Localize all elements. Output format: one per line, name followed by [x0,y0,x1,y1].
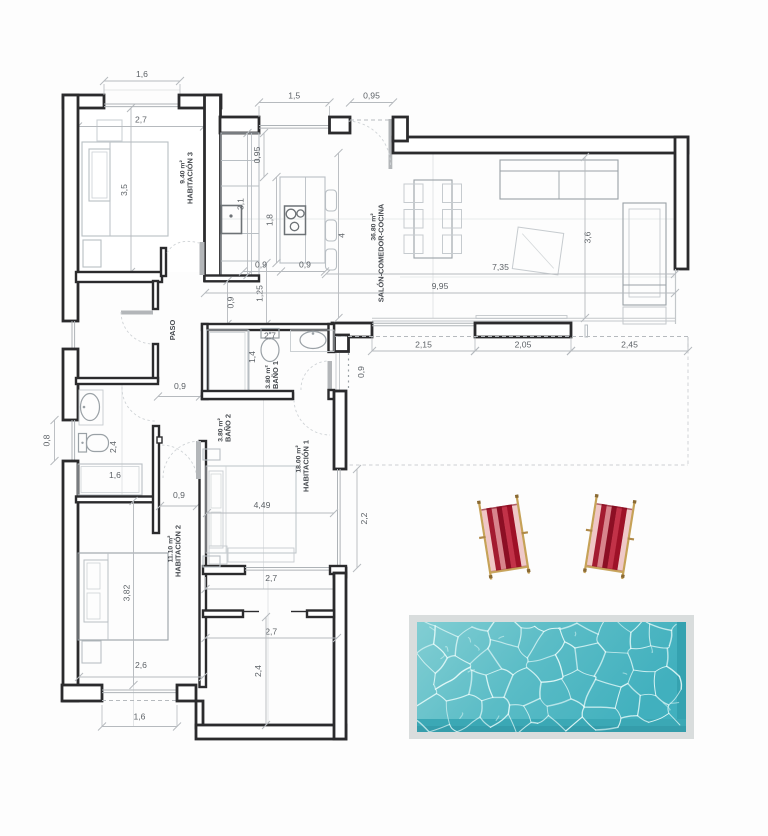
svg-text:2,7: 2,7 [265,573,277,583]
svg-text:0,9: 0,9 [226,296,236,308]
svg-text:0,9: 0,9 [299,260,311,270]
svg-text:0,9: 0,9 [356,366,366,378]
svg-text:1,5: 1,5 [288,91,300,101]
svg-text:2,2: 2,2 [359,512,369,524]
svg-text:2,6: 2,6 [135,660,147,670]
svg-text:2,15: 2,15 [415,340,432,350]
svg-text:3,1: 3,1 [236,198,246,210]
svg-text:3.80 m²: 3.80 m² [218,418,225,442]
svg-text:HABITACIÓN 2: HABITACIÓN 2 [174,525,183,577]
svg-text:36.80 m²: 36.80 m² [371,213,378,241]
svg-text:2,7: 2,7 [264,331,276,341]
svg-text:0,95: 0,95 [363,91,380,101]
svg-text:HABITACIÓN 3: HABITACIÓN 3 [186,152,195,204]
svg-text:4: 4 [337,233,347,238]
svg-text:HABITACIÓN 1: HABITACIÓN 1 [302,440,311,492]
svg-text:0,9: 0,9 [255,260,267,270]
svg-text:1,6: 1,6 [136,69,148,79]
svg-text:SALÓN-COMEDOR-COCINA: SALÓN-COMEDOR-COCINA [377,203,386,302]
svg-text:BAÑO 1: BAÑO 1 [271,361,280,389]
svg-text:2,4: 2,4 [108,441,118,453]
svg-text:2,7: 2,7 [135,115,147,125]
svg-text:9.40 m²: 9.40 m² [180,160,187,184]
svg-text:0,8: 0,8 [42,434,52,446]
svg-text:2,45: 2,45 [621,340,638,350]
svg-text:3,6: 3,6 [583,231,593,243]
svg-text:PASO: PASO [168,320,177,341]
svg-text:2,05: 2,05 [515,340,532,350]
svg-text:18.00 m²: 18.00 m² [296,445,303,473]
svg-text:3,5: 3,5 [119,184,129,196]
svg-text:1,6: 1,6 [134,712,146,722]
svg-text:2,7: 2,7 [265,627,277,637]
svg-text:3.80 m²: 3.80 m² [265,365,272,389]
svg-text:11.10 m²: 11.10 m² [168,535,175,563]
svg-text:9,95: 9,95 [432,281,449,291]
svg-text:2,4: 2,4 [253,665,263,677]
svg-text:1,8: 1,8 [265,214,275,226]
svg-text:0,95: 0,95 [252,146,262,163]
svg-text:4,49: 4,49 [254,500,271,510]
svg-text:3,82: 3,82 [122,584,132,601]
svg-text:0,9: 0,9 [174,381,186,391]
svg-text:7,35: 7,35 [492,262,509,272]
svg-text:BAÑO 2: BAÑO 2 [224,414,233,442]
svg-text:1,4: 1,4 [247,351,257,363]
svg-text:0,9: 0,9 [173,490,185,500]
svg-text:1,6: 1,6 [109,470,121,480]
